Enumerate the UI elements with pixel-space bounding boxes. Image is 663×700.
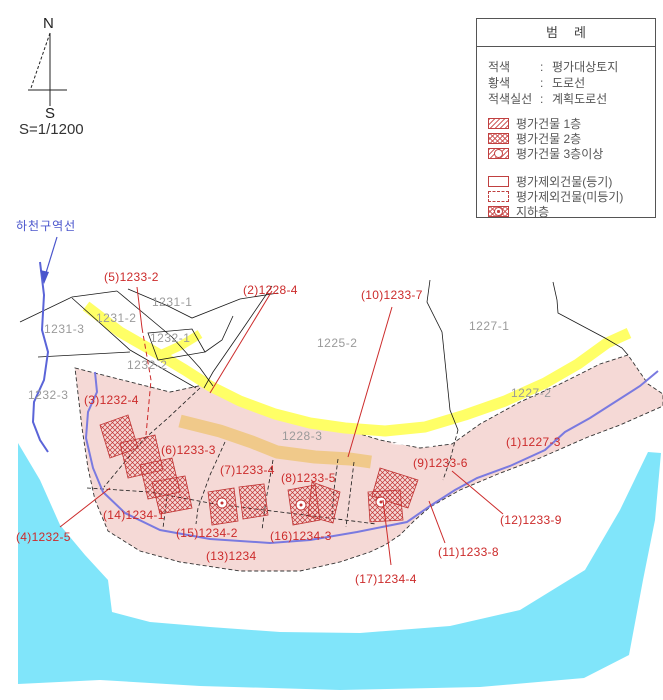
basement-marker <box>217 498 227 508</box>
evaluation-label: (6)1233-3 <box>161 443 216 457</box>
legend-colon: : <box>540 91 552 107</box>
parcel-label: 1228-3 <box>282 429 322 443</box>
legend-colon: : <box>540 75 552 91</box>
compass-icon: N S <box>28 15 67 122</box>
hatch-2f-swatch-icon <box>488 133 509 144</box>
parcel-boundary-line <box>38 352 130 357</box>
legend-swatch-row: 평가제외건물(등기) <box>488 174 655 189</box>
parcel-label: 1232-3 <box>28 388 68 402</box>
evaluation-label: (11)1233-8 <box>438 545 499 559</box>
parcel-boundary-line <box>427 280 458 430</box>
legend-desc: 도로선 <box>552 76 585 90</box>
map-scale: S=1/1200 <box>19 121 84 138</box>
parcel-label: 1231-3 <box>44 322 84 336</box>
legend-body: 적색:평가대상토지 황색:도로선 적색실선:계획도로선 평가건물 1층 평가건물… <box>477 47 655 219</box>
hatch-3f-swatch-icon <box>488 148 509 159</box>
parcel-label: 1232-2 <box>127 358 167 372</box>
evaluation-label: (5)1233-2 <box>104 270 159 284</box>
hatch-1f-swatch-icon <box>488 118 509 129</box>
evaluation-label: (16)1234-3 <box>270 529 332 543</box>
legend-swatch-row: 지하층 <box>488 204 655 219</box>
parcel-label: 1231-2 <box>96 311 136 325</box>
evaluation-label: (7)1233-4 <box>220 463 275 477</box>
legend-excluded-swatches: 평가제외건물(등기) 평가제외건물(미등기) 지하층 <box>488 174 655 219</box>
legend-swatch-row: 평가건물 2층 <box>488 131 655 146</box>
river-zone-arrow-line <box>45 237 57 276</box>
legend-swatch-row: 평가건물 3층이상 <box>488 146 655 161</box>
evaluation-label: (1)1227-3 <box>506 435 561 449</box>
outline-swatch-icon <box>488 176 509 187</box>
label-leader-line <box>137 287 142 328</box>
evaluation-label: (15)1234-2 <box>176 526 238 540</box>
legend-swatch-row: 평가건물 1층 <box>488 116 655 131</box>
legend-term: 적색실선 <box>488 91 540 107</box>
legend-swatch-label: 지하층 <box>516 203 549 220</box>
basement-marker <box>296 500 306 510</box>
parcel-label: 1227-1 <box>469 319 509 333</box>
evaluation-label: (9)1233-6 <box>413 456 468 470</box>
evaluation-label: (3)1232-4 <box>84 393 139 407</box>
legend-term: 적색 <box>488 59 540 75</box>
evaluation-label: (17)1234-4 <box>355 572 417 586</box>
parcel-boundary-line <box>205 316 233 352</box>
legend-color-row: 황색:도로선 <box>488 75 655 91</box>
evaluation-label: (14)1234-1 <box>103 508 165 522</box>
legend-color-row: 적색실선:계획도로선 <box>488 91 655 107</box>
parcel-label: 1227-2 <box>511 386 551 400</box>
legend-building-swatches: 평가건물 1층 평가건물 2층 평가건물 3층이상 <box>488 116 655 161</box>
evaluation-label: (10)1233-7 <box>361 288 423 302</box>
legend-desc: 계획도로선 <box>552 92 607 106</box>
evaluation-label: (12)1233-9 <box>500 513 562 527</box>
parcel-boundary-line <box>204 286 272 388</box>
legend-color-row: 적색:평가대상토지 <box>488 59 655 75</box>
legend-box: 범례 적색:평가대상토지 황색:도로선 적색실선:계획도로선 평가건물 1층 평… <box>476 18 656 218</box>
dashed-outline-swatch-icon <box>488 191 509 202</box>
river-zone-label: 하천구역선 <box>16 218 76 233</box>
label-leader-line <box>429 501 445 543</box>
legend-term: 황색 <box>488 75 540 91</box>
parcel-label: 1232-1 <box>150 331 190 345</box>
legend-colon: : <box>540 59 552 75</box>
parcel-label: 1231-1 <box>152 295 192 309</box>
legend-desc: 평가대상토지 <box>552 60 618 74</box>
legend-title: 범례 <box>477 19 655 47</box>
basement-swatch-icon <box>488 206 509 217</box>
cadastral-map-page: 1231-1 1231-2 1231-3 1232-1 1232-2 1232-… <box>0 0 663 700</box>
parcel-label: 1225-2 <box>317 336 357 350</box>
building-hatched <box>239 484 268 519</box>
legend-swatch-label: 평가건물 3층이상 <box>516 145 603 162</box>
legend-swatch-row: 평가제외건물(미등기) <box>488 189 655 204</box>
evaluation-label: (13)1234 <box>206 549 256 563</box>
compass-north-label: N <box>43 15 54 32</box>
basement-marker <box>376 497 386 507</box>
evaluation-label: (4)1232-5 <box>16 530 71 544</box>
compass-south-label: S <box>45 105 55 122</box>
evaluation-label: (8)1233-5 <box>281 471 336 485</box>
evaluation-label: (2)1228-4 <box>243 283 298 297</box>
